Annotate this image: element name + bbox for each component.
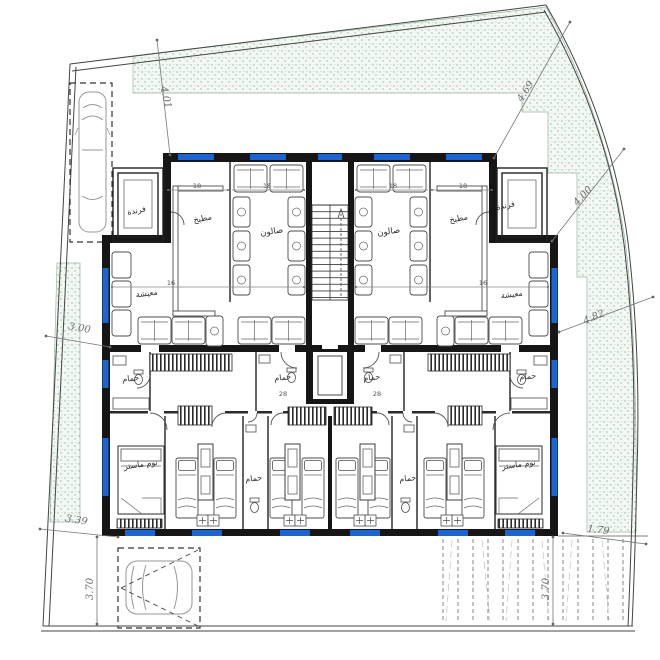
car-top [75, 92, 110, 232]
veranda-rail [124, 180, 152, 228]
dim-bath-inner-left: 28 [279, 390, 287, 398]
label-veranda-right: فرندة [495, 199, 515, 212]
label-bath-inner-right: حمام [363, 372, 381, 383]
label-bath-upper-right: حمام [519, 371, 537, 382]
label-living-right: معيشة [500, 289, 523, 301]
dim-bottom-left: 3.39 [65, 513, 89, 527]
label-salon-left: صالون [260, 225, 284, 238]
ramp-lines [443, 539, 623, 621]
dim-salon-right: 18 [389, 182, 397, 190]
label-living-left: معيشة [135, 288, 158, 300]
dim-yard-left: 3.70 [85, 577, 96, 600]
dim-yard-right: 3.70 [541, 577, 552, 600]
dim-bath-inner-right: 28 [373, 390, 381, 398]
label-veranda-left: فرندة [126, 204, 146, 217]
floor-plan-drawing: 4.01 4.69 4.00 4.82 3.00 3.39 3.70 3.70 … [0, 0, 660, 660]
dim-ramp: 1.79 [587, 524, 611, 538]
dim-kitchen-right: 18 [459, 182, 467, 190]
label-kitchen-left: مطبخ [193, 213, 213, 225]
parking-stall-bottom [118, 548, 200, 628]
label-bath-inner-left: حمام [274, 372, 292, 383]
kitchen-counter [173, 186, 223, 316]
label-bath-lower-left: حمام [245, 473, 263, 484]
label-salon-right: صالون [377, 225, 401, 238]
dim-living-right: 16 [479, 279, 487, 287]
label-bath-upper-left: حمام [122, 373, 140, 384]
dim-living-left: 16 [167, 279, 175, 287]
floor-plan-page: 4.01 4.69 4.00 4.82 3.00 3.39 3.70 3.70 … [0, 0, 660, 660]
unit-right-mirror [306, 153, 558, 536]
ramp-contours [446, 540, 609, 621]
dim-kitchen-left: 18 [193, 182, 201, 190]
label-kitchen-right: مطبخ [449, 213, 469, 225]
living-sofas [112, 252, 131, 336]
car-bottom [126, 561, 192, 614]
dim-salon-left: 18 [263, 182, 271, 190]
label-bath-lower-right: حمام [399, 473, 417, 484]
